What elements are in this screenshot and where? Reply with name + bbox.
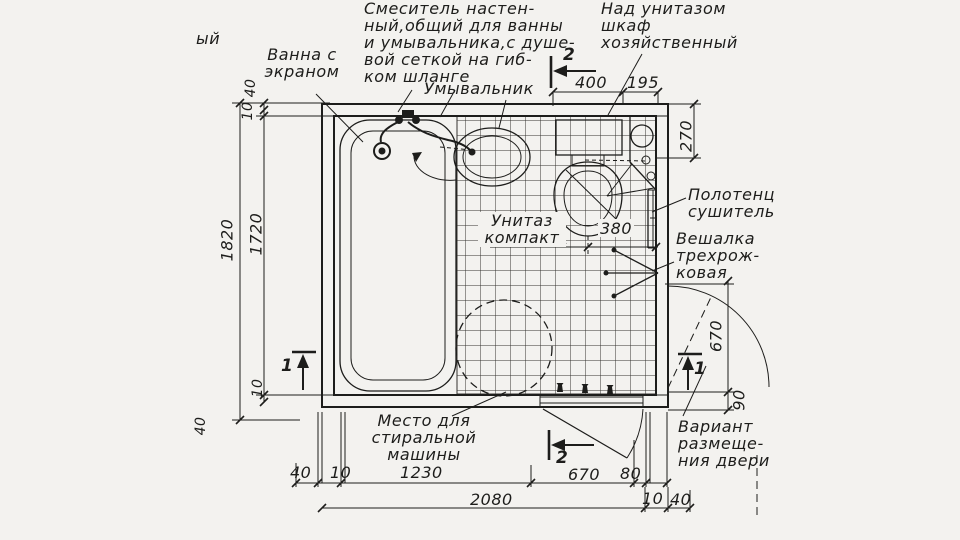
scan-crop-mask [774,0,960,540]
dim-b2-2080: 2080 [470,490,513,509]
section-2-top: 2 [563,45,575,65]
label-washing-machine: Место для стиральной машины [366,412,482,463]
label-door-variant: Вариант размеще- ния двери [678,418,770,469]
tile-floor [457,116,656,394]
dim-left-top-40: 40 [243,79,259,98]
dim-left-top-10: 10 [240,102,256,121]
label-hanger: Вешалка трехрож- ковая [676,230,760,281]
dim-670-right: 670 [707,320,726,352]
section-1-left: 1 [281,356,293,376]
label-bathtub: Ванна с экраном [254,46,350,80]
dim-b1-1230: 1230 [400,463,443,482]
label-toilet: Унитаз компакт [478,212,566,246]
label-washbasin: Умывальник [424,80,534,97]
label-mixer: Смеситель настен- ный,общий для ванны и … [364,0,575,85]
dim-1720: 1720 [247,213,266,256]
dim-b2-10: 10 [642,489,663,508]
section-2-bottom: 2 [556,448,568,468]
dim-left-bottom-40: 40 [193,417,209,436]
label-partial-left: ый [196,30,220,47]
dim-b1-40: 40 [290,463,311,482]
bathroom-plan-drawing: ый Ванна с экраном Смеситель настен- ный… [0,0,960,540]
dim-b1-80: 80 [620,464,641,483]
dim-90: 90 [730,389,749,410]
section-1-right: 1 [694,359,706,379]
dim-b1-10: 10 [330,463,351,482]
door-sill [540,397,643,403]
label-cabinet: Над унитазом шкаф хозяйственный [601,0,738,51]
bathtub [340,120,456,391]
shower-head [374,122,398,159]
dim-380: 380 [600,219,632,238]
dim-left-bottom-10: 10 [250,379,266,398]
dim-b2-40: 40 [670,490,691,509]
dim-195: 195 [627,73,659,92]
dim-270: 270 [677,120,696,152]
dim-400: 400 [575,73,607,92]
dim-1820: 1820 [218,219,237,262]
dim-b1-670: 670 [568,465,600,484]
